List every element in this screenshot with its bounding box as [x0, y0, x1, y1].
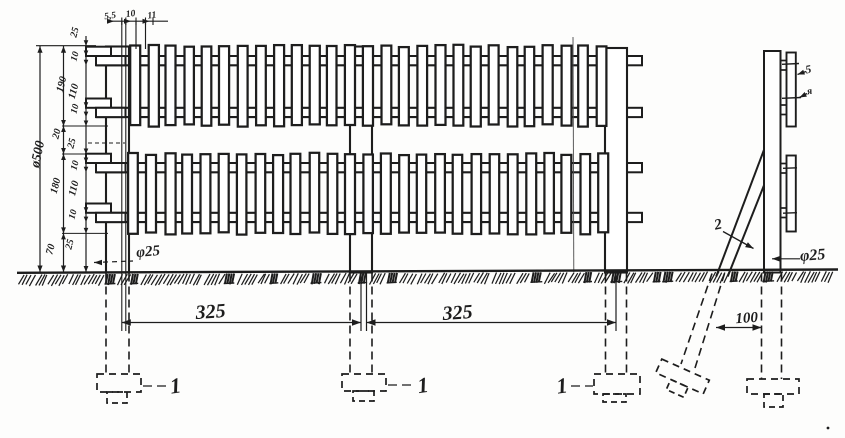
svg-text:11: 11: [147, 10, 157, 21]
svg-text:10: 10: [125, 9, 136, 20]
svg-text:φ25: φ25: [136, 243, 162, 261]
svg-text:325: 325: [194, 300, 226, 324]
svg-text:5,5: 5,5: [104, 11, 117, 23]
svg-text:325: 325: [441, 301, 473, 325]
svg-text:φ25: φ25: [799, 246, 825, 265]
svg-text:100: 100: [735, 310, 759, 328]
